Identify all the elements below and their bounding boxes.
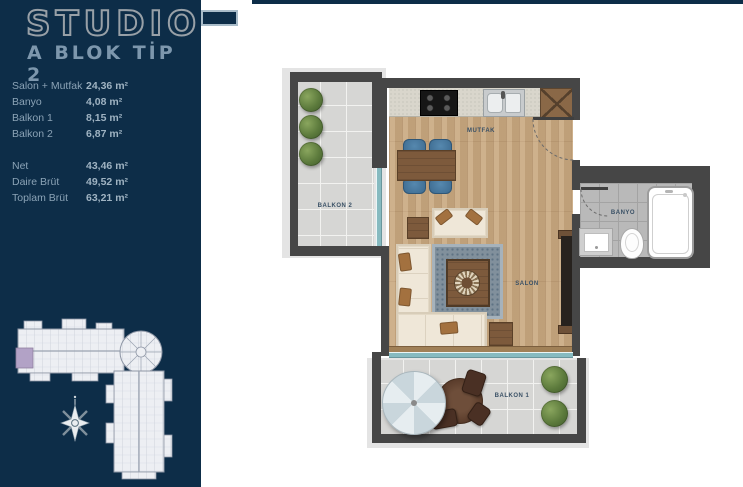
area-row: Banyo 4,08 m² [12, 94, 192, 110]
umbrella-pole [411, 400, 417, 406]
area-row: Balkon 2 6,87 m² [12, 126, 192, 142]
area-label: Daire Brüt [12, 176, 86, 188]
sink-basin [584, 233, 609, 252]
area-value: 49,52 m² [86, 176, 128, 188]
bathroom-wall [572, 166, 710, 183]
room-label-balkon1: BALKON 1 [484, 393, 540, 399]
sink-basin [505, 93, 521, 113]
wall [381, 78, 580, 88]
area-value: 24,36 m² [86, 80, 128, 92]
tv-unit [561, 236, 572, 326]
toilet-seat [625, 233, 639, 252]
area-row: Net 43,46 m² [12, 158, 192, 174]
wall [381, 246, 389, 356]
side-table [407, 217, 429, 239]
bathtub [647, 186, 694, 259]
umbrella [382, 371, 446, 435]
title-dash [201, 10, 238, 26]
wall [572, 78, 580, 120]
site-plan-horizontal-wing [18, 319, 124, 381]
side-table [489, 322, 513, 346]
plant-bush [299, 88, 323, 112]
balcony2-wall [372, 82, 387, 168]
toilet [620, 228, 644, 259]
plant-bush [299, 142, 323, 166]
kitchen-sink [483, 89, 525, 117]
site-plan [10, 315, 180, 483]
balcony1-wall [577, 358, 586, 443]
balcony2-window [376, 168, 382, 246]
room-label-salon: SALON [503, 281, 551, 287]
site-plan-highlighted-unit [16, 348, 33, 368]
page: STUDIO A BLOK TİP 2 Salon + Mutfak 24,36… [0, 0, 743, 487]
site-plan-tower [120, 331, 162, 373]
area-label: Toplam Brüt [12, 192, 86, 204]
plant-bush [541, 400, 568, 427]
bathroom-sink [579, 228, 613, 256]
sofa-pillow [440, 321, 459, 335]
sofa-pillow [398, 252, 412, 271]
kitchen-cabinet [540, 88, 574, 120]
bathroom-wall [692, 166, 710, 268]
plant-bush [299, 115, 323, 139]
area-row: Balkon 1 8,15 m² [12, 110, 192, 126]
bathroom-wall [572, 257, 710, 268]
page-title: STUDIO [26, 4, 201, 44]
area-label: Balkon 2 [12, 128, 86, 140]
balcony2-wall [290, 72, 382, 82]
room-label-banyo: BANYO [601, 210, 645, 216]
site-plan-vertical-wing [106, 371, 172, 479]
plant-bush [541, 366, 568, 393]
area-value: 43,46 m² [86, 160, 128, 172]
area-label: Salon + Mutfak [12, 80, 86, 92]
table-centerpiece [454, 270, 480, 296]
bathtub-faucet [665, 190, 673, 193]
bathtub-drain [683, 193, 687, 197]
entry-door [533, 117, 574, 120]
area-value: 4,08 m² [86, 96, 122, 108]
area-value: 8,15 m² [86, 112, 122, 124]
area-list: Salon + Mutfak 24,36 m² Banyo 4,08 m² Ba… [12, 78, 192, 206]
area-row: Toplam Brüt 63,21 m² [12, 190, 192, 206]
balcony1-wall [372, 352, 381, 443]
area-label: Net [12, 160, 86, 172]
dining-table [397, 150, 456, 181]
room-label-mutfak: MUTFAK [455, 128, 507, 134]
area-value: 6,87 m² [86, 128, 122, 140]
room-label-balkon2: BALKON 2 [303, 203, 367, 209]
compass-icon [61, 396, 89, 441]
bathroom-door [581, 187, 608, 190]
sink-faucet [501, 91, 505, 99]
area-value: 63,21 m² [86, 192, 128, 204]
balcony2-wall [290, 72, 298, 256]
balcony1-wall [372, 434, 586, 443]
sidebar: STUDIO A BLOK TİP 2 Salon + Mutfak 24,36… [0, 0, 201, 487]
top-accent-bar [252, 0, 743, 4]
balcony2-wall [290, 246, 387, 256]
sofa-pillow [398, 287, 412, 306]
sink-faucet [595, 246, 598, 249]
area-row: Daire Brüt 49,52 m² [12, 174, 192, 190]
bathtub-inner [652, 194, 689, 254]
area-label: Banyo [12, 96, 86, 108]
stove [420, 90, 458, 116]
area-label: Balkon 1 [12, 112, 86, 124]
area-row: Salon + Mutfak 24,36 m² [12, 78, 192, 94]
